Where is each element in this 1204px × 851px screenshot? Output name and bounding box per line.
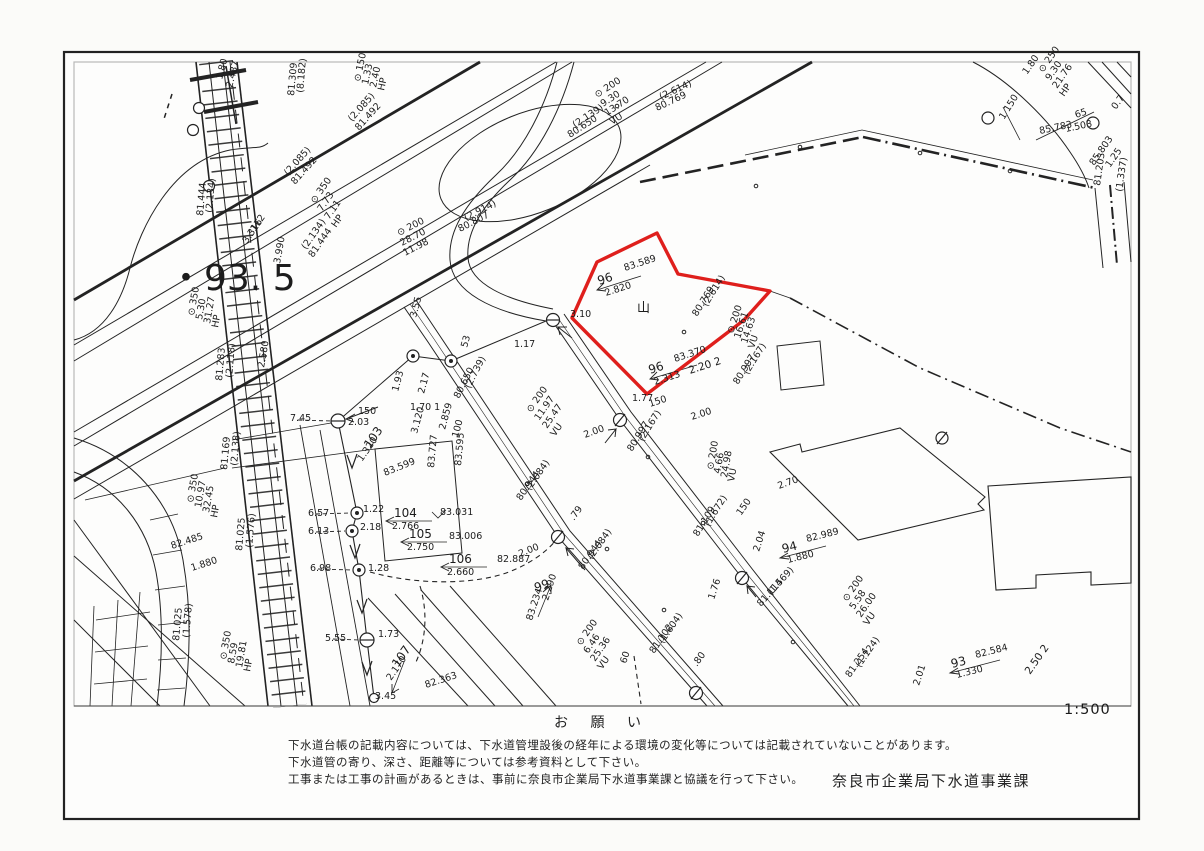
map-label: 1.22 [363, 504, 384, 515]
map-label: 105 [409, 527, 432, 541]
notice-line-2: 下水道管の寄り、深さ、距離等については参考資料として下さい。 [288, 754, 647, 770]
attribution: 奈良市企業局下水道事業課 [832, 770, 1030, 791]
map-label: 2.03 [348, 417, 369, 428]
map-label: 2.660 [447, 567, 474, 578]
map-label: 1.17 [514, 339, 535, 350]
sewer-registry-map-page: ⊙ 2009.3013.70VU(2.139)80.650(2.614)80.7… [0, 0, 1204, 851]
map-label: 2.18 [360, 522, 381, 533]
map-label: HP [209, 504, 222, 519]
map-label: 83.006 [449, 531, 482, 542]
outer-border [64, 52, 1139, 819]
scale-label: 1:500 [1064, 702, 1111, 718]
map-label: 6.13 [308, 526, 329, 537]
map-label: 3.45 [375, 691, 396, 702]
map-label: 7.45 [290, 413, 311, 424]
map-label: 104 [394, 506, 417, 520]
map-label: HP [242, 658, 255, 673]
map-label: 1.28 [368, 563, 389, 574]
map-label: 5.55 [325, 633, 346, 644]
map-label: 山 [637, 301, 650, 316]
map-label: 6.98 [310, 563, 331, 574]
map-label: 83.031 [440, 507, 473, 518]
map-label: ・93. 5 [168, 258, 296, 299]
map-label: 2.750 [407, 542, 434, 553]
notice-line-1: 下水道台帳の記載内容については、下水道管埋設後の経年による環境の変化等については… [288, 737, 957, 753]
map-label: 106 [449, 552, 472, 566]
map-label: HP [210, 314, 223, 329]
map-label: 6.57 [308, 508, 329, 519]
notice-heading: お 願 い [64, 712, 1140, 732]
notice-line-3: 工事または工事の計画があるときは、事前に奈良市企業局下水道事業課と協議を行って下… [288, 771, 803, 787]
map-label: 1.73 [378, 629, 399, 640]
map-label: 3.10 [570, 309, 591, 320]
map-label: 150 [358, 406, 376, 417]
map-label: VU [726, 467, 739, 482]
